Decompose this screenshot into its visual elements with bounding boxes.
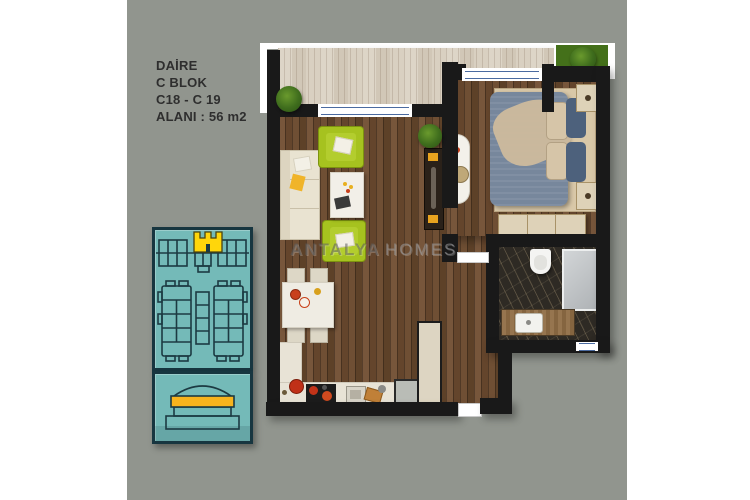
bed-pillow-beige	[546, 142, 568, 180]
wall-bottom-outer	[266, 402, 458, 416]
watermark-secondary: HOMES	[385, 240, 457, 259]
bathroom-door	[457, 252, 489, 263]
watermark-primary: ANTALYA	[290, 240, 381, 259]
living-room-plant	[418, 124, 442, 148]
listing-area: ALANI : 56 m2	[156, 108, 247, 125]
block-site-plan-panel	[152, 227, 253, 371]
wall-living-bedroom-divider	[442, 62, 458, 208]
living-room-window	[318, 104, 412, 117]
faucet	[526, 320, 531, 325]
watermark: ANTALYAHOMES	[290, 240, 457, 260]
tv-unit	[424, 148, 444, 230]
listing-units: C18 - C 19	[156, 91, 247, 108]
sofa-backrest	[281, 151, 290, 239]
toilet	[530, 249, 551, 274]
dining-chair	[287, 326, 305, 343]
building-elevation-panel	[152, 371, 253, 444]
listing-info: DAİRE C BLOK C18 - C 19 ALANI : 56 m2	[156, 57, 247, 125]
terrace-edge-left	[260, 43, 267, 113]
tv-screen	[431, 167, 436, 209]
red-pot	[289, 379, 304, 394]
dining-table	[282, 282, 334, 328]
site-plan-drawing	[155, 230, 250, 368]
tall-cabinet	[417, 321, 442, 404]
dining-chair	[310, 326, 328, 343]
wall-right-outer	[596, 66, 610, 352]
elevation-drawing	[155, 374, 250, 441]
terrace-plant	[276, 86, 302, 112]
shower	[562, 249, 600, 311]
entrance-door	[458, 403, 482, 417]
armchair-top	[318, 126, 364, 168]
sofa	[280, 150, 320, 240]
laptop	[334, 196, 351, 210]
sofa-yellow-pillow	[289, 174, 305, 192]
bed-pillow-blue	[566, 142, 586, 182]
wall-bedroom-top-right	[552, 66, 602, 82]
garden-edge-right	[610, 43, 615, 79]
highlighted-floor-band	[171, 396, 234, 407]
listing-type: DAİRE	[156, 57, 247, 74]
wall-bedroom-bathroom	[486, 234, 610, 247]
bathroom-window	[576, 342, 598, 351]
bowl	[378, 385, 386, 393]
bedroom-window	[462, 68, 542, 81]
wall-hallway-right	[498, 350, 512, 402]
lamp	[585, 95, 591, 101]
stove	[306, 384, 336, 403]
listing-block: C BLOK	[156, 74, 247, 91]
lamp	[585, 193, 591, 199]
sofa-white-pillow	[293, 156, 312, 173]
bathroom-vanity	[501, 309, 575, 336]
floor-plan-screenshot: DAİRE C BLOK C18 - C 19 ALANI : 56 m2	[0, 0, 750, 500]
bathroom-sink	[515, 313, 543, 333]
coffee-table	[330, 172, 364, 218]
